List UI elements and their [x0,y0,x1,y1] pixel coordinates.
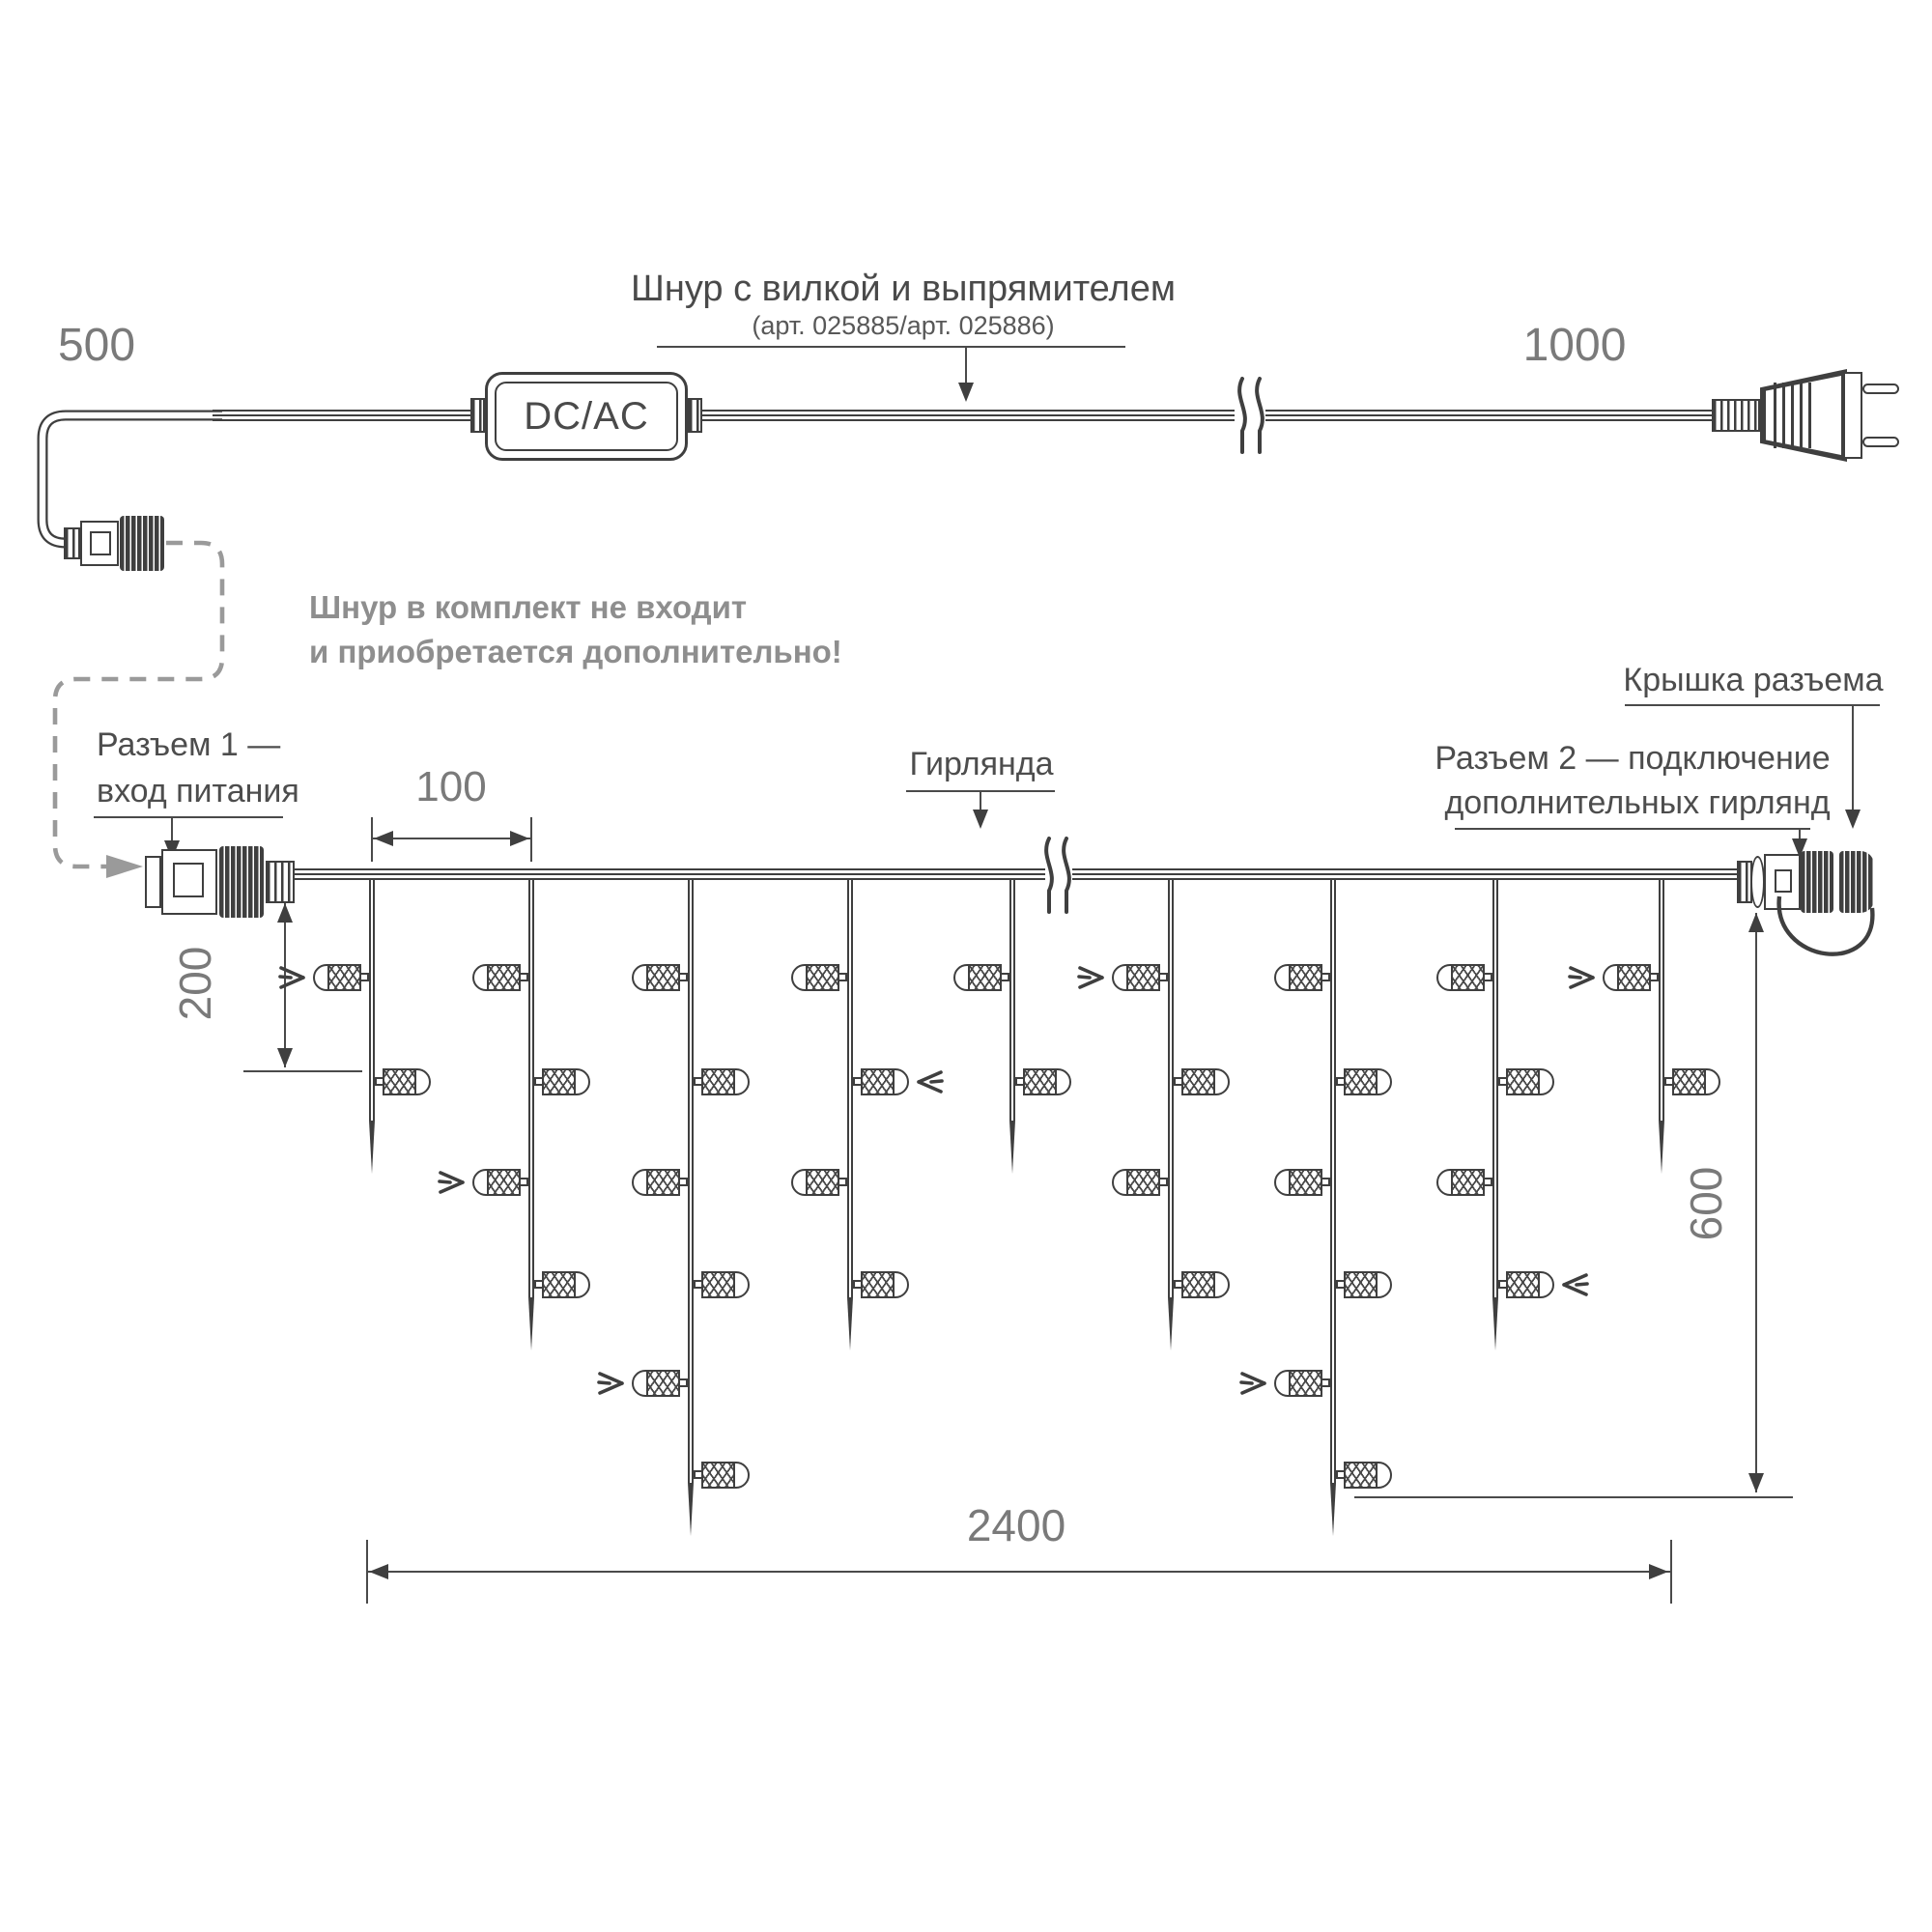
dim-100-arrow-left-icon [374,831,393,846]
cord-break-icon [1229,377,1275,454]
flash-marker-icon [915,1068,944,1095]
dim-200: 200 [169,947,221,1021]
garland-connector2-ring [1750,856,1765,908]
not-included-dashed-path [39,526,290,884]
drop-wire-tip [847,1297,853,1350]
led-bulb-icon [1436,1169,1485,1196]
dim-600: 600 [1680,1167,1732,1241]
dim-600-extension [1354,1496,1793,1498]
garland-label: Гирлянда [909,746,1053,783]
connector1-label-line2: вход питания [97,773,299,810]
drop-wire [688,878,694,1483]
led-bulb-icon [1506,1271,1554,1298]
dim-200-arrow-up-icon [277,903,293,923]
dim-500: 500 [58,319,135,372]
led-bulb-icon [1274,964,1322,991]
plug-pin-bottom [1862,437,1899,447]
led-bulb-icon [1344,1271,1392,1298]
led-bulb-icon [1506,1068,1554,1095]
led-bulb-icon [953,964,1002,991]
cord-title-underline [657,346,1125,348]
converter-right-coupler [688,398,702,433]
led-bulb-icon [701,1462,750,1489]
connector1-underline [94,816,283,818]
led-bulb-icon [632,1169,680,1196]
led-bulb-icon [791,964,839,991]
garland-connector1-coupler [266,861,295,903]
led-bulb-icon [701,1068,750,1095]
drop-wire [1168,878,1174,1297]
led-bulb-icon [791,1169,839,1196]
cord-wire-right-b [1265,410,1712,421]
drop-wire-tip [528,1297,534,1350]
cord-title-leader [965,346,967,384]
cap-underline [1625,704,1880,706]
led-bulb-icon [1603,964,1651,991]
cap-arrow-icon [1845,810,1861,829]
led-bulb-icon [1344,1462,1392,1489]
drop-wire-tip [1492,1297,1498,1350]
flash-marker-icon [1568,964,1597,991]
drop-wire [847,878,853,1297]
dim-200-arrow-down-icon [277,1048,293,1067]
dim-2400-arrow-left-icon [369,1564,388,1579]
garland-connector1-body [161,849,217,915]
led-bulb-icon [472,1169,521,1196]
drop-wire-tip [1009,1121,1015,1174]
dim-200-extension [243,1070,362,1072]
led-bulb-icon [1181,1271,1230,1298]
drop-wire-tip [369,1121,375,1174]
led-bulb-icon [1112,964,1160,991]
garland-connector1-flange [145,856,161,908]
led-bulb-icon [861,1271,909,1298]
cord-title: Шнур с вилкой и выпрямителем [631,269,1176,310]
led-bulb-icon [1672,1068,1720,1095]
note-line2: и приобретается дополнительно! [309,634,842,670]
drop-wire [528,878,534,1297]
cord-wire-right-a [702,410,1235,421]
cap-leader [1852,704,1854,812]
garland-break-icon [1036,837,1082,914]
connector1-leader [171,816,173,843]
led-bulb-icon [1344,1068,1392,1095]
drop-wire-tip [1659,1121,1664,1174]
cap-label: Крышка разъема [1623,662,1883,699]
dim-600-arrow-down-icon [1748,1473,1764,1492]
led-bulb-icon [313,964,361,991]
converter-label: DC/AC [495,382,678,451]
connector1-label-line1: Разъем 1 — [97,726,280,764]
cord-wire-left [213,410,485,421]
led-bulb-icon [861,1068,909,1095]
led-bulb-icon [1274,1370,1322,1397]
connector2-label-line1: Разъем 2 — подключение [1435,740,1830,778]
flash-marker-icon [1560,1271,1589,1298]
connector2-label-line2: дополнительных гирлянд [1444,784,1830,822]
diagram-canvas: Шнур с вилкой и выпрямителем (арт. 02588… [0,0,1932,1932]
plug-pin-top [1862,384,1899,394]
flash-marker-icon [1239,1370,1268,1397]
led-bulb-icon [1181,1068,1230,1095]
flash-marker-icon [1077,964,1106,991]
garland-arrow-icon [973,810,988,829]
dim-1000: 1000 [1523,319,1627,372]
dim-600-arrow-up-icon [1748,913,1764,932]
garland-connector1-barrel [219,846,264,918]
cord-title-arrow-icon [958,383,974,402]
garland-leader [980,790,981,811]
led-bulb-icon [701,1271,750,1298]
flash-marker-icon [438,1169,467,1196]
led-bulb-icon [383,1068,431,1095]
led-bulb-icon [1023,1068,1071,1095]
led-bulb-icon [1112,1169,1160,1196]
garland-wire-a [295,868,1045,880]
led-bulb-icon [1274,1169,1322,1196]
cap-tether-loop [1766,889,1901,995]
connector2-underline [1455,828,1810,830]
led-bulb-icon [1436,964,1485,991]
dim-2400-line [367,1571,1671,1573]
dim-100-arrow-right-icon [510,831,529,846]
led-bulb-icon [632,964,680,991]
drop-wire-tip [1168,1297,1174,1350]
plug-coupler [1712,399,1760,432]
drop-wire-tip [688,1483,694,1536]
drop-wire-tip [1330,1483,1336,1536]
drop-wire [1492,878,1498,1297]
plug-ridges-icon [1774,383,1812,448]
converter-box: DC/AC [485,372,688,461]
flash-marker-icon [597,1370,626,1397]
plug-backplate [1843,372,1862,459]
flash-marker-icon [278,964,307,991]
dim-600-line [1755,913,1757,1492]
drop-wire [1330,878,1336,1483]
note-line1: Шнур в комплект не входит [309,589,747,626]
led-bulb-icon [632,1370,680,1397]
dim-100: 100 [415,763,486,811]
led-bulb-icon [542,1271,590,1298]
dim-2400-arrow-right-icon [1649,1564,1668,1579]
cord-subtitle: (арт. 025885/арт. 025886) [752,311,1054,341]
dim-100-line [372,838,531,839]
led-bulb-icon [472,964,521,991]
converter-left-coupler [470,398,485,433]
led-bulb-icon [542,1068,590,1095]
dim-2400: 2400 [967,1499,1065,1551]
